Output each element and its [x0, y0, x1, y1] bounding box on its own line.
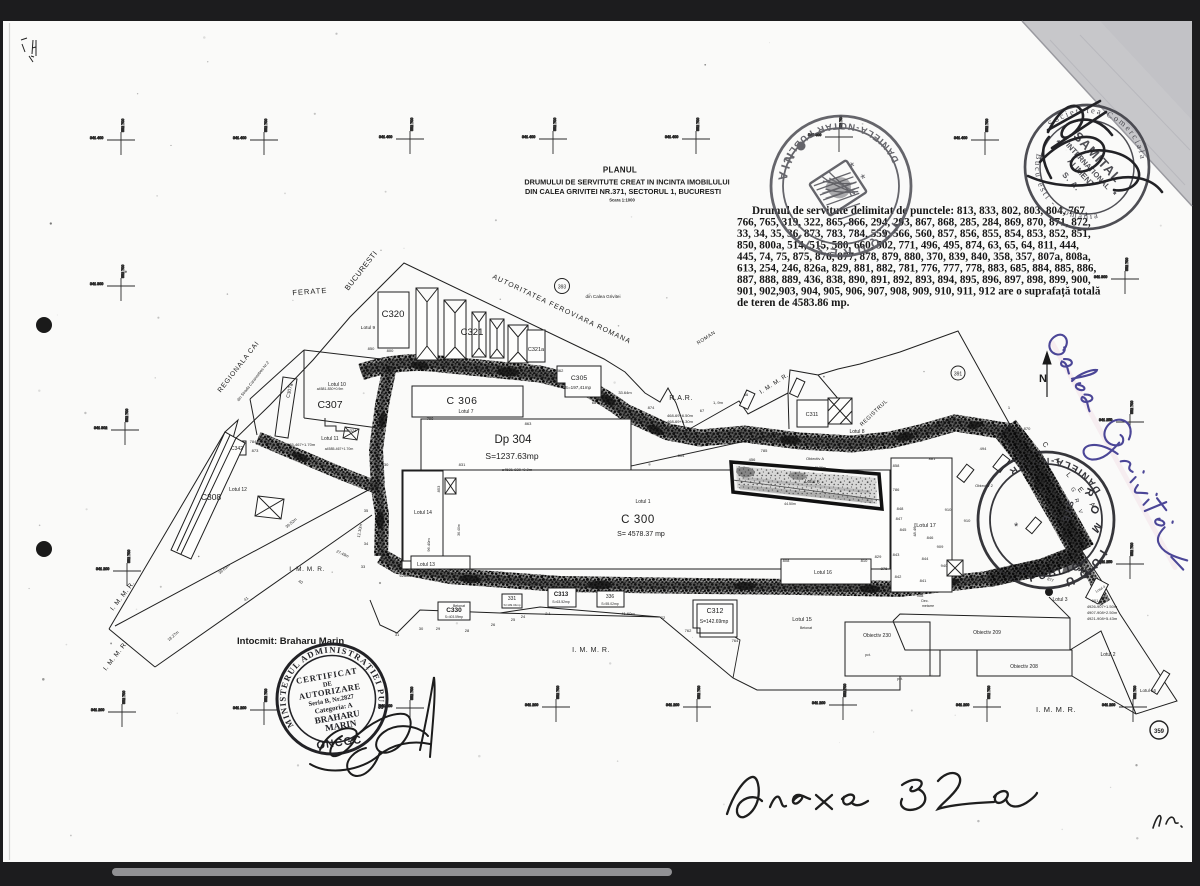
svg-text:552 700: 552 700 [410, 687, 414, 700]
svg-text:604: 604 [586, 583, 593, 588]
svg-text:445, 74, 75, 875, 876, 877,: 445, 74, 75, 875, 876, 877, 878, 879, 88… [737, 251, 1091, 263]
svg-text:1,.9m: 1,.9m [713, 400, 724, 405]
svg-text:341 200: 341 200 [233, 706, 246, 710]
svg-text:764: 764 [732, 638, 739, 643]
svg-text:341 400: 341 400 [233, 136, 246, 140]
svg-text:552 700: 552 700 [125, 409, 129, 422]
svg-text:48.46m: 48.46m [912, 523, 917, 537]
svg-text:040: 040 [537, 373, 544, 378]
svg-text:552 700: 552 700 [1133, 686, 1137, 699]
svg-text:Dp 304: Dp 304 [494, 434, 532, 446]
svg-text:S=403.59mp: S=403.59mp [445, 615, 463, 619]
svg-text:44.50m: 44.50m [784, 502, 796, 506]
svg-text:I. M. M. R.: I. M. M. R. [572, 647, 610, 654]
svg-text:844: 844 [922, 556, 929, 561]
svg-text:metarre: metarre [922, 604, 934, 608]
svg-text:25: 25 [511, 617, 516, 622]
svg-text:Lotul 3: Lotul 3 [1052, 597, 1067, 603]
svg-text:341 400: 341 400 [90, 136, 103, 140]
svg-text:341 300: 341 300 [1094, 275, 1107, 279]
svg-text:766, 765, 319, 322, 865, 866,: 766, 765, 319, 322, 865, 866, 294, 293, … [737, 217, 1091, 229]
svg-text:341 200: 341 200 [525, 703, 538, 707]
svg-text:901: 901 [1092, 598, 1099, 603]
svg-text:41.60m: 41.60m [653, 585, 667, 590]
svg-text:908: 908 [917, 593, 924, 598]
svg-text:552 700: 552 700 [697, 686, 701, 699]
svg-text:468-69+6.30m: 468-69+6.30m [667, 419, 694, 424]
svg-text:863: 863 [525, 421, 532, 426]
svg-text:N50: N50 [416, 358, 424, 363]
svg-text:C321a: C321a [528, 347, 545, 353]
svg-text:359: 359 [1154, 729, 1165, 735]
svg-text:41.60m: 41.60m [621, 611, 635, 616]
svg-text:Lotul 11: Lotul 11 [321, 436, 339, 442]
svg-text:S=55.02mp: S=55.02mp [601, 602, 619, 606]
svg-text:848: 848 [897, 506, 904, 511]
svg-text:34: 34 [364, 541, 369, 546]
svg-text:552 700: 552 700 [121, 265, 125, 278]
svg-text:341 400: 341 400 [379, 135, 392, 139]
svg-text:910: 910 [964, 518, 971, 523]
svg-text:341 200: 341 200 [812, 701, 825, 705]
svg-text:C 306: C 306 [446, 395, 477, 407]
svg-text:393: 393 [558, 285, 567, 291]
svg-text:626a: 626a [400, 573, 410, 578]
svg-text:32.39m: 32.39m [749, 586, 763, 591]
svg-text:67: 67 [700, 408, 705, 413]
svg-text:341 200: 341 200 [956, 703, 969, 707]
svg-text:846: 846 [927, 535, 934, 540]
svg-text:S=109.34mp: S=109.34mp [503, 603, 520, 607]
svg-text:C305: C305 [571, 375, 587, 382]
svg-text:341 400: 341 400 [665, 135, 678, 139]
svg-text:Dec.: Dec. [921, 599, 928, 603]
svg-text:552 700: 552 700 [987, 686, 991, 699]
svg-text:341 300: 341 300 [90, 282, 103, 286]
svg-text:pct.: pct. [865, 653, 871, 657]
svg-text:847: 847 [896, 516, 903, 521]
svg-text:391: 391 [954, 372, 963, 378]
svg-text:786: 786 [893, 487, 900, 492]
svg-text:S=1237.63mp: S=1237.63mp [485, 451, 538, 461]
svg-text:74 AUTO: 74 AUTO [898, 430, 920, 437]
svg-text:Obiectiv 2: Obiectiv 2 [975, 483, 994, 488]
svg-text:4921-908+5.43m: 4921-908+5.43m [1087, 616, 1118, 621]
svg-text:din Calea Grivitei: din Calea Grivitei [586, 294, 621, 299]
svg-text:552 700: 552 700 [985, 119, 989, 132]
svg-text:Betonat: Betonat [453, 604, 465, 608]
svg-text:783: 783 [752, 440, 759, 445]
svg-text:331: 331 [508, 596, 517, 602]
svg-text:762: 762 [685, 628, 692, 633]
svg-text:C 300: C 300 [621, 514, 655, 526]
svg-text:785: 785 [761, 448, 768, 453]
svg-text:058 9: 058 9 [477, 366, 488, 371]
svg-text:881: 881 [929, 456, 936, 461]
svg-text:456: 456 [749, 457, 756, 462]
svg-text:909: 909 [937, 544, 944, 549]
svg-text:Lotul 13: Lotul 13 [417, 562, 435, 568]
svg-text:Lotul 8: Lotul 8 [849, 429, 864, 435]
svg-text:Lotul 6: Lotul 6 [804, 479, 820, 486]
svg-text:66: 66 [744, 392, 749, 397]
svg-text:C342: C342 [231, 446, 243, 452]
svg-text:I. M. M. R.: I. M. M. R. [289, 566, 324, 573]
svg-text:DIN CALEA GRIVITEI NR.371, SEC: DIN CALEA GRIVITEI NR.371, SECTORUL 1, B… [525, 187, 721, 196]
svg-text:4926-907+1.50m: 4926-907+1.50m [1087, 604, 1118, 609]
svg-text:552 700: 552 700 [410, 118, 414, 131]
svg-text:870: 870 [1024, 426, 1031, 431]
svg-text:341 400: 341 400 [954, 136, 967, 140]
svg-text:552 700: 552 700 [264, 119, 268, 132]
svg-text:842: 842 [895, 574, 902, 579]
svg-text:49-40m: 49-40m [527, 581, 541, 586]
svg-text:C330: C330 [446, 607, 462, 614]
svg-text:Scara 1:1000: Scara 1:1000 [609, 198, 635, 203]
svg-text:33: 33 [361, 564, 366, 569]
svg-text:874: 874 [648, 405, 655, 410]
svg-text:858: 858 [893, 463, 900, 468]
svg-text:Lotul 16: Lotul 16 [814, 570, 832, 576]
svg-text:24: 24 [521, 614, 526, 619]
svg-text:552 700: 552 700 [1130, 543, 1134, 556]
svg-text:Lotul 1: Lotul 1 [635, 499, 650, 505]
svg-text:552 700: 552 700 [127, 550, 131, 563]
svg-text:552 700: 552 700 [696, 118, 700, 131]
svg-text:494: 494 [980, 446, 987, 451]
svg-text:49.36m: 49.36m [814, 466, 826, 470]
svg-text:96: 96 [844, 588, 849, 593]
svg-text:Lotul 14: Lotul 14 [414, 510, 432, 516]
svg-text:341 400: 341 400 [522, 135, 535, 139]
svg-text:C308: C308 [201, 492, 222, 502]
svg-text:26: 26 [491, 622, 496, 627]
svg-text:831: 831 [459, 462, 466, 467]
svg-text:000: 000 [441, 362, 448, 367]
svg-text:830: 830 [382, 462, 389, 467]
svg-text:843: 843 [893, 552, 900, 557]
svg-text:C321: C321 [461, 327, 484, 338]
svg-text:33.64m: 33.64m [618, 390, 632, 395]
svg-text:Obiectiv 209: Obiectiv 209 [973, 630, 1001, 636]
svg-text:Lotul 15: Lotul 15 [792, 617, 812, 623]
svg-text:S=197,41mp: S=197,41mp [565, 385, 592, 390]
svg-text:862: 862 [557, 368, 564, 373]
svg-text:C312: C312 [707, 608, 724, 615]
svg-text:63 64: 63 64 [667, 424, 678, 429]
svg-text:C307: C307 [317, 399, 342, 411]
svg-text:Lotul 16: Lotul 16 [1140, 688, 1157, 693]
svg-text:850: 850 [368, 346, 375, 351]
svg-text:552 700: 552 700 [1125, 258, 1129, 271]
svg-text:590: 590 [265, 434, 272, 439]
svg-text:341 302: 341 302 [94, 426, 107, 430]
svg-text:30: 30 [419, 626, 424, 631]
svg-text:341 200: 341 200 [91, 708, 104, 712]
svg-text:68: 68 [592, 400, 597, 405]
svg-text:341 200: 341 200 [96, 567, 109, 571]
svg-text:853: 853 [436, 485, 441, 492]
svg-text:R.A.R.: R.A.R. [669, 395, 693, 402]
svg-text:613, 254, 246, 826a, 829, 881,: 613, 254, 246, 826a, 829, 881, 882, 781,… [737, 263, 1097, 275]
svg-text:804: 804 [678, 453, 685, 458]
svg-text:494: 494 [848, 445, 855, 450]
svg-text:2.1: 2.1 [545, 611, 551, 616]
svg-text:a4585-467+1.70m: a4585-467+1.70m [325, 447, 354, 451]
svg-text:PLANUL: PLANUL [603, 166, 637, 175]
svg-text:841: 841 [920, 578, 927, 583]
svg-text:887, 888, 889, 436, 838, 890,: 887, 888, 889, 436, 838, 890, 891, 892, … [737, 274, 1091, 286]
svg-text:4585-467+1.70m: 4585-467+1.70m [285, 442, 316, 447]
svg-text:Betonat: Betonat [800, 626, 812, 630]
svg-text:829: 829 [875, 554, 882, 559]
svg-text:Obiectiv 208: Obiectiv 208 [1010, 664, 1038, 670]
svg-text:de teren de 4583.86 mp.: de teren de 4583.86 mp. [737, 297, 850, 309]
svg-text:C311: C311 [806, 412, 819, 418]
svg-text:808: 808 [783, 558, 790, 563]
svg-text:31: 31 [395, 632, 400, 637]
svg-text:22: 22 [661, 615, 666, 620]
svg-text:468-69+6.50m: 468-69+6.50m [667, 413, 694, 418]
svg-text:Lotul 2: Lotul 2 [1100, 652, 1115, 658]
svg-text:876: 876 [881, 566, 888, 571]
svg-text:810: 810 [861, 558, 868, 563]
svg-text:I. M. M. R.: I. M. M. R. [1036, 705, 1076, 714]
svg-text:552 700: 552 700 [264, 689, 268, 702]
svg-text:29: 29 [436, 626, 441, 631]
svg-text:552 700: 552 700 [556, 686, 560, 699]
svg-text:620 613: 620 613 [448, 567, 463, 572]
svg-text:pct.: pct. [897, 677, 903, 681]
svg-text:552 700: 552 700 [553, 118, 557, 131]
svg-text:910: 910 [945, 507, 952, 512]
svg-text:0324: 0324 [348, 428, 358, 433]
svg-text:DRUMULUI DE SERVITUTE CREAT IN: DRUMULUI DE SERVITUTE CREAT IN INCINTA I… [524, 178, 729, 187]
svg-text:Lotul 9: Lotul 9 [361, 325, 376, 331]
svg-text:Lotul 7: Lotul 7 [458, 409, 473, 415]
svg-text:845: 845 [900, 527, 907, 532]
svg-text:4907-908+2.50m: 4907-908+2.50m [1087, 610, 1118, 615]
svg-text:S=63.52mp: S=63.52mp [552, 600, 570, 604]
svg-text:800: 800 [387, 348, 394, 353]
svg-text:S=142.69mp: S=142.69mp [700, 619, 729, 625]
svg-text:Obiectiv A: Obiectiv A [806, 456, 824, 461]
svg-text:552 700: 552 700 [121, 119, 125, 132]
svg-text:790: 790 [427, 416, 434, 421]
svg-text:Drumul de servitute delimitat: Drumul de servitute delimitat de punctel… [752, 205, 1088, 217]
svg-text:341 200: 341 200 [666, 703, 679, 707]
svg-text:28: 28 [465, 628, 470, 633]
svg-text:a4581-830+0.9m: a4581-830+0.9m [502, 467, 533, 472]
svg-text:341 200: 341 200 [1102, 703, 1115, 707]
svg-text:C320: C320 [382, 309, 405, 320]
svg-text:Lotul 17: Lotul 17 [916, 523, 936, 529]
svg-text:873: 873 [252, 448, 259, 453]
svg-text:S= 4578.37 mp: S= 4578.37 mp [617, 531, 665, 538]
svg-text:Lotul 12: Lotul 12 [229, 487, 247, 493]
svg-text:Obiectiv 230: Obiectiv 230 [863, 633, 891, 639]
svg-text:336: 336 [606, 594, 615, 600]
svg-text:552 700: 552 700 [1130, 401, 1134, 414]
svg-text:a4581-830+0.9m: a4581-830+0.9m [317, 387, 344, 391]
svg-text:784: 784 [250, 439, 257, 444]
svg-text:*: * [1014, 521, 1019, 533]
svg-text:C313: C313 [554, 592, 569, 598]
svg-text:901, 902,903, 904, 905, 906, 9: 901, 902,903, 904, 905, 906, 907, 908, 9… [737, 286, 1101, 298]
svg-text:552 700: 552 700 [122, 691, 126, 704]
svg-text:N: N [1039, 373, 1047, 385]
svg-text:850, 800a, 514, 515, 580,: 850, 800a, 514, 515, 580, 660, 502, 771,… [737, 240, 1079, 252]
svg-text:35: 35 [364, 508, 369, 513]
svg-text:940: 940 [941, 563, 948, 568]
svg-text:36.40m: 36.40m [457, 524, 461, 536]
svg-text:96.40m: 96.40m [426, 538, 431, 552]
svg-text:341 250: 341 250 [1099, 418, 1112, 422]
